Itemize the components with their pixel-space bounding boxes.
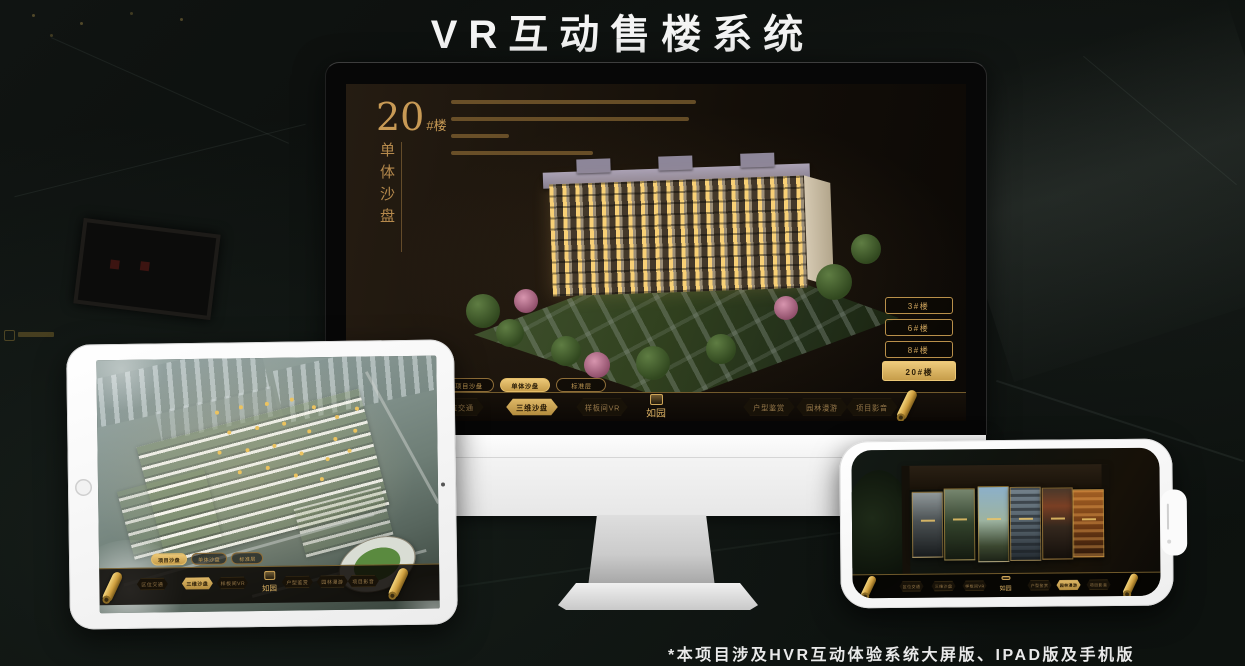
brand-logo-text: 如园 — [1000, 583, 1012, 592]
nav-item-unit-appreciation[interactable]: 户型鉴赏 — [739, 398, 799, 416]
floor-button-6[interactable]: 6#楼 — [885, 319, 953, 336]
scroll-icon[interactable] — [1122, 572, 1140, 597]
nav-item-label: 户型鉴赏 — [753, 402, 785, 413]
brand-logo-text: 如园 — [262, 582, 277, 593]
nav-item-project-media[interactable]: 项目影音 — [842, 398, 902, 416]
building-number-suffix: #楼 — [426, 118, 446, 133]
subtab-label: 标准层 — [239, 554, 256, 562]
nav-item-garden-roam[interactable]: 园林漫游 — [1054, 579, 1082, 590]
gallery-panel-courtyard[interactable] — [912, 492, 944, 558]
subtab-standard-floor[interactable]: 标准层 — [231, 552, 263, 564]
phone-speaker — [1167, 503, 1169, 529]
nav-item-3d-sandtable[interactable]: 三维沙盘 — [179, 577, 215, 591]
panel-label-blur — [1050, 518, 1064, 520]
panel-label-blur — [1018, 518, 1032, 520]
panel-label-blur — [986, 518, 1000, 520]
watermark-emblem-icon — [4, 330, 15, 341]
building-dormer — [740, 153, 774, 168]
subtab-single-sandtable[interactable]: 单体沙盘 — [500, 378, 550, 392]
nav-item-unit-appreciation[interactable]: 户型鉴赏 — [1025, 580, 1053, 591]
tree-blob — [851, 234, 881, 264]
floor-button-label: 20#楼 — [905, 365, 933, 377]
page-title: VR互动售楼系统 — [0, 2, 1245, 60]
gallery-panel-lit-shelves[interactable] — [1073, 489, 1105, 557]
nav-item-label: 项目影音 — [856, 402, 888, 413]
brand-logo[interactable]: 如园 — [992, 576, 1018, 595]
panel-label-blur — [920, 520, 934, 522]
scroll-icon[interactable] — [860, 575, 878, 599]
flower-tree-blob — [584, 352, 610, 378]
brand-seal-icon — [264, 571, 275, 580]
subtab-label: 单体沙盘 — [511, 380, 538, 389]
phone-device: 区位交通 三维沙盘 样板间VR 如园 户型鉴赏 园林漫游 项目影音 — [839, 439, 1173, 609]
building-model[interactable] — [549, 176, 808, 297]
nav-item-project-media[interactable]: 项目影音 — [345, 574, 381, 588]
flower-tree-blob — [514, 289, 538, 313]
nav-item-showroom-vr[interactable]: 样板间VR — [960, 580, 988, 591]
footnote: *本项目涉及HVR互动体验系统大屏版、IPAD版及手机版 — [668, 641, 1135, 665]
brand-logo-text: 如园 — [646, 406, 666, 420]
nav-item-label: 样板间VR — [220, 579, 245, 587]
subtab-label: 标准层 — [571, 380, 591, 389]
nav-item-label: 区位交通 — [903, 583, 921, 589]
description-text-line — [451, 151, 593, 155]
nav-item-label: 样板间VR — [584, 402, 619, 413]
monitor-stand-base — [558, 583, 758, 610]
nav-item-label: 园林漫游 — [806, 402, 838, 413]
brand-logo[interactable]: 如园 — [634, 394, 678, 421]
floor-button-label: 6#楼 — [908, 322, 930, 334]
building-heading: 20#楼 单体沙盘 — [376, 98, 447, 252]
certificate-seal-mark — [140, 261, 150, 271]
subtab-standard-floor[interactable]: 标准层 — [556, 378, 606, 392]
background-watermark-logo — [4, 328, 56, 342]
subtab-label: 项目沙盘 — [158, 555, 180, 563]
tablet-screen: 项目沙盘 单体沙盘 标准层 区位交通 三维沙盘 样板间VR 如园 户型鉴赏 园林… — [96, 356, 439, 614]
tree-blob — [496, 319, 524, 347]
nav-item-3d-sandtable[interactable]: 三维沙盘 — [929, 580, 957, 591]
nav-item-label: 样板间VR — [965, 583, 985, 589]
phone-screen: 区位交通 三维沙盘 样板间VR 如园 户型鉴赏 园林漫游 项目影音 — [851, 448, 1160, 599]
nav-item-label: 项目影音 — [352, 577, 374, 585]
tree-blob — [551, 336, 581, 366]
nav-item-project-media[interactable]: 项目影音 — [1084, 579, 1112, 590]
tablet-device: 项目沙盘 单体沙盘 标准层 区位交通 三维沙盘 样板间VR 如园 户型鉴赏 园林… — [66, 339, 458, 629]
nav-item-unit-appreciation[interactable]: 户型鉴赏 — [279, 575, 315, 589]
nav-item-location-traffic[interactable]: 区位交通 — [134, 577, 170, 591]
building-facade — [549, 176, 808, 297]
description-text-line — [451, 117, 689, 121]
gate-post — [901, 466, 910, 576]
gallery-panel-building[interactable] — [1010, 487, 1042, 561]
flower-tree-blob — [774, 296, 798, 320]
floor-button-label: 3#楼 — [908, 300, 930, 312]
brand-seal-icon — [1001, 576, 1010, 580]
nav-item-label: 园林漫游 — [321, 578, 343, 586]
nav-item-location-traffic[interactable]: 区位交通 — [897, 581, 925, 592]
building-subtitle: 单体沙盘 — [376, 142, 402, 252]
nav-item-label: 项目影音 — [1090, 582, 1108, 588]
nav-item-label: 园林漫游 — [1060, 582, 1078, 588]
panel-label-blur — [1081, 518, 1095, 520]
phone-navbar: 区位交通 三维沙盘 样板间VR 如园 户型鉴赏 园林漫游 项目影音 — [852, 572, 1160, 599]
background-certificate-frame — [73, 218, 220, 320]
nav-item-label: 三维沙盘 — [186, 580, 208, 588]
nav-item-label: 户型鉴赏 — [1031, 582, 1049, 588]
building-dormer — [576, 158, 610, 173]
nav-item-showroom-vr[interactable]: 样板间VR — [214, 576, 250, 590]
gallery-panel-green-interior[interactable] — [944, 488, 976, 560]
phone-notch — [1161, 489, 1188, 555]
watermark-text-blur — [18, 332, 54, 337]
building-dormer — [658, 155, 692, 170]
tree-blob — [706, 334, 736, 364]
floor-button-3[interactable]: 3#楼 — [885, 297, 953, 314]
nav-item-3d-sandtable[interactable]: 三维沙盘 — [502, 398, 562, 416]
nav-item-label: 区位交通 — [141, 580, 163, 588]
brand-seal-icon — [650, 394, 663, 405]
tablet-home-button — [75, 478, 92, 495]
subtab-project-sandtable[interactable]: 项目沙盘 — [151, 553, 187, 566]
certificate-seal-mark — [110, 260, 120, 270]
stage: VR互动售楼系统 *本项目涉及HVR互动体验系统大屏版、IPAD版及手机版 20… — [0, 0, 1245, 666]
description-text-line — [451, 134, 509, 138]
nav-item-label: 三维沙盘 — [935, 583, 953, 589]
subtab-label: 项目沙盘 — [455, 380, 482, 389]
tree-blob — [636, 346, 670, 380]
monitor-stand-neck — [588, 515, 715, 587]
scroll-icon[interactable] — [387, 566, 410, 599]
tree-blob — [816, 264, 852, 300]
description-text-line — [451, 100, 696, 104]
panel-label-blur — [952, 519, 966, 521]
subtab-single-sandtable[interactable]: 单体沙盘 — [191, 552, 227, 565]
tablet-camera-dot — [441, 482, 445, 486]
nav-item-showroom-vr[interactable]: 样板间VR — [572, 398, 632, 416]
nav-item-label: 户型鉴赏 — [286, 578, 308, 586]
floor-button-8[interactable]: 8#楼 — [885, 341, 953, 358]
scroll-icon[interactable] — [101, 570, 124, 603]
gallery-panel-landscape[interactable] — [978, 486, 1010, 562]
tablet-navbar: 区位交通 三维沙盘 样板间VR 如园 户型鉴赏 园林漫游 项目影音 — [99, 564, 439, 606]
building-number: 20 — [376, 95, 424, 139]
tree-blob — [466, 294, 500, 328]
nav-item-label: 三维沙盘 — [516, 402, 548, 413]
subtab-label: 单体沙盘 — [198, 555, 220, 563]
floor-button-label: 8#楼 — [908, 344, 930, 356]
gallery-panel-autumn[interactable] — [1042, 487, 1074, 559]
floor-button-20[interactable]: 20#楼 — [882, 361, 956, 381]
phone-camera — [1167, 539, 1171, 543]
